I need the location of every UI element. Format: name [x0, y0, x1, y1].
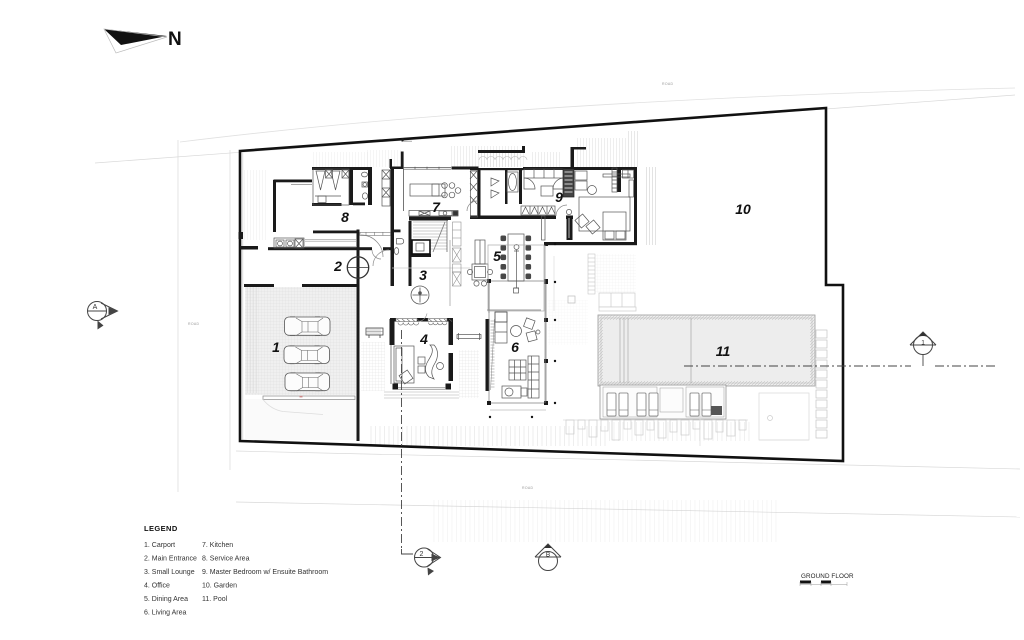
svg-text:6: 6	[511, 339, 519, 355]
svg-text:3. Small Lounge: 3. Small Lounge	[144, 569, 195, 576]
svg-text:9: 9	[555, 189, 563, 205]
svg-text:2. Main Entrance: 2. Main Entrance	[144, 556, 197, 563]
svg-text:ROAD: ROAD	[522, 486, 533, 490]
svg-text:4. Office: 4. Office	[144, 583, 170, 590]
svg-text:2: 2	[420, 551, 424, 558]
svg-text:N: N	[168, 29, 182, 50]
svg-text:LEGEND: LEGEND	[144, 524, 178, 533]
svg-text:10. Garden: 10. Garden	[202, 583, 237, 590]
svg-text:9. Master Bedroom w/ Ensuite B: 9. Master Bedroom w/ Ensuite Bathroom	[202, 569, 328, 576]
svg-text:11: 11	[716, 343, 731, 359]
svg-text:11. Pool: 11. Pool	[202, 596, 228, 603]
svg-text:5. Dining Area: 5. Dining Area	[144, 596, 188, 603]
svg-text:7. Kitchen: 7. Kitchen	[202, 542, 233, 549]
svg-text:1. Carport: 1. Carport	[144, 542, 175, 549]
svg-text:GROUND FLOOR: GROUND FLOOR	[801, 573, 854, 580]
svg-text:1: 1	[921, 340, 925, 347]
svg-text:A: A	[93, 304, 98, 311]
svg-text:1: 1	[272, 339, 280, 355]
svg-text:10: 10	[735, 201, 751, 217]
svg-text:6. Living Area: 6. Living Area	[144, 610, 187, 617]
svg-text:ROAD: ROAD	[662, 82, 673, 86]
svg-text:B: B	[546, 552, 550, 559]
svg-text:4: 4	[419, 331, 428, 347]
svg-text:3: 3	[419, 267, 427, 283]
svg-text:7: 7	[432, 199, 441, 215]
svg-text:8: 8	[341, 209, 349, 225]
svg-text:5: 5	[493, 248, 501, 264]
svg-text:2: 2	[333, 258, 342, 274]
svg-text:8. Service Area: 8. Service Area	[202, 556, 250, 563]
svg-text:ROAD: ROAD	[188, 322, 199, 326]
